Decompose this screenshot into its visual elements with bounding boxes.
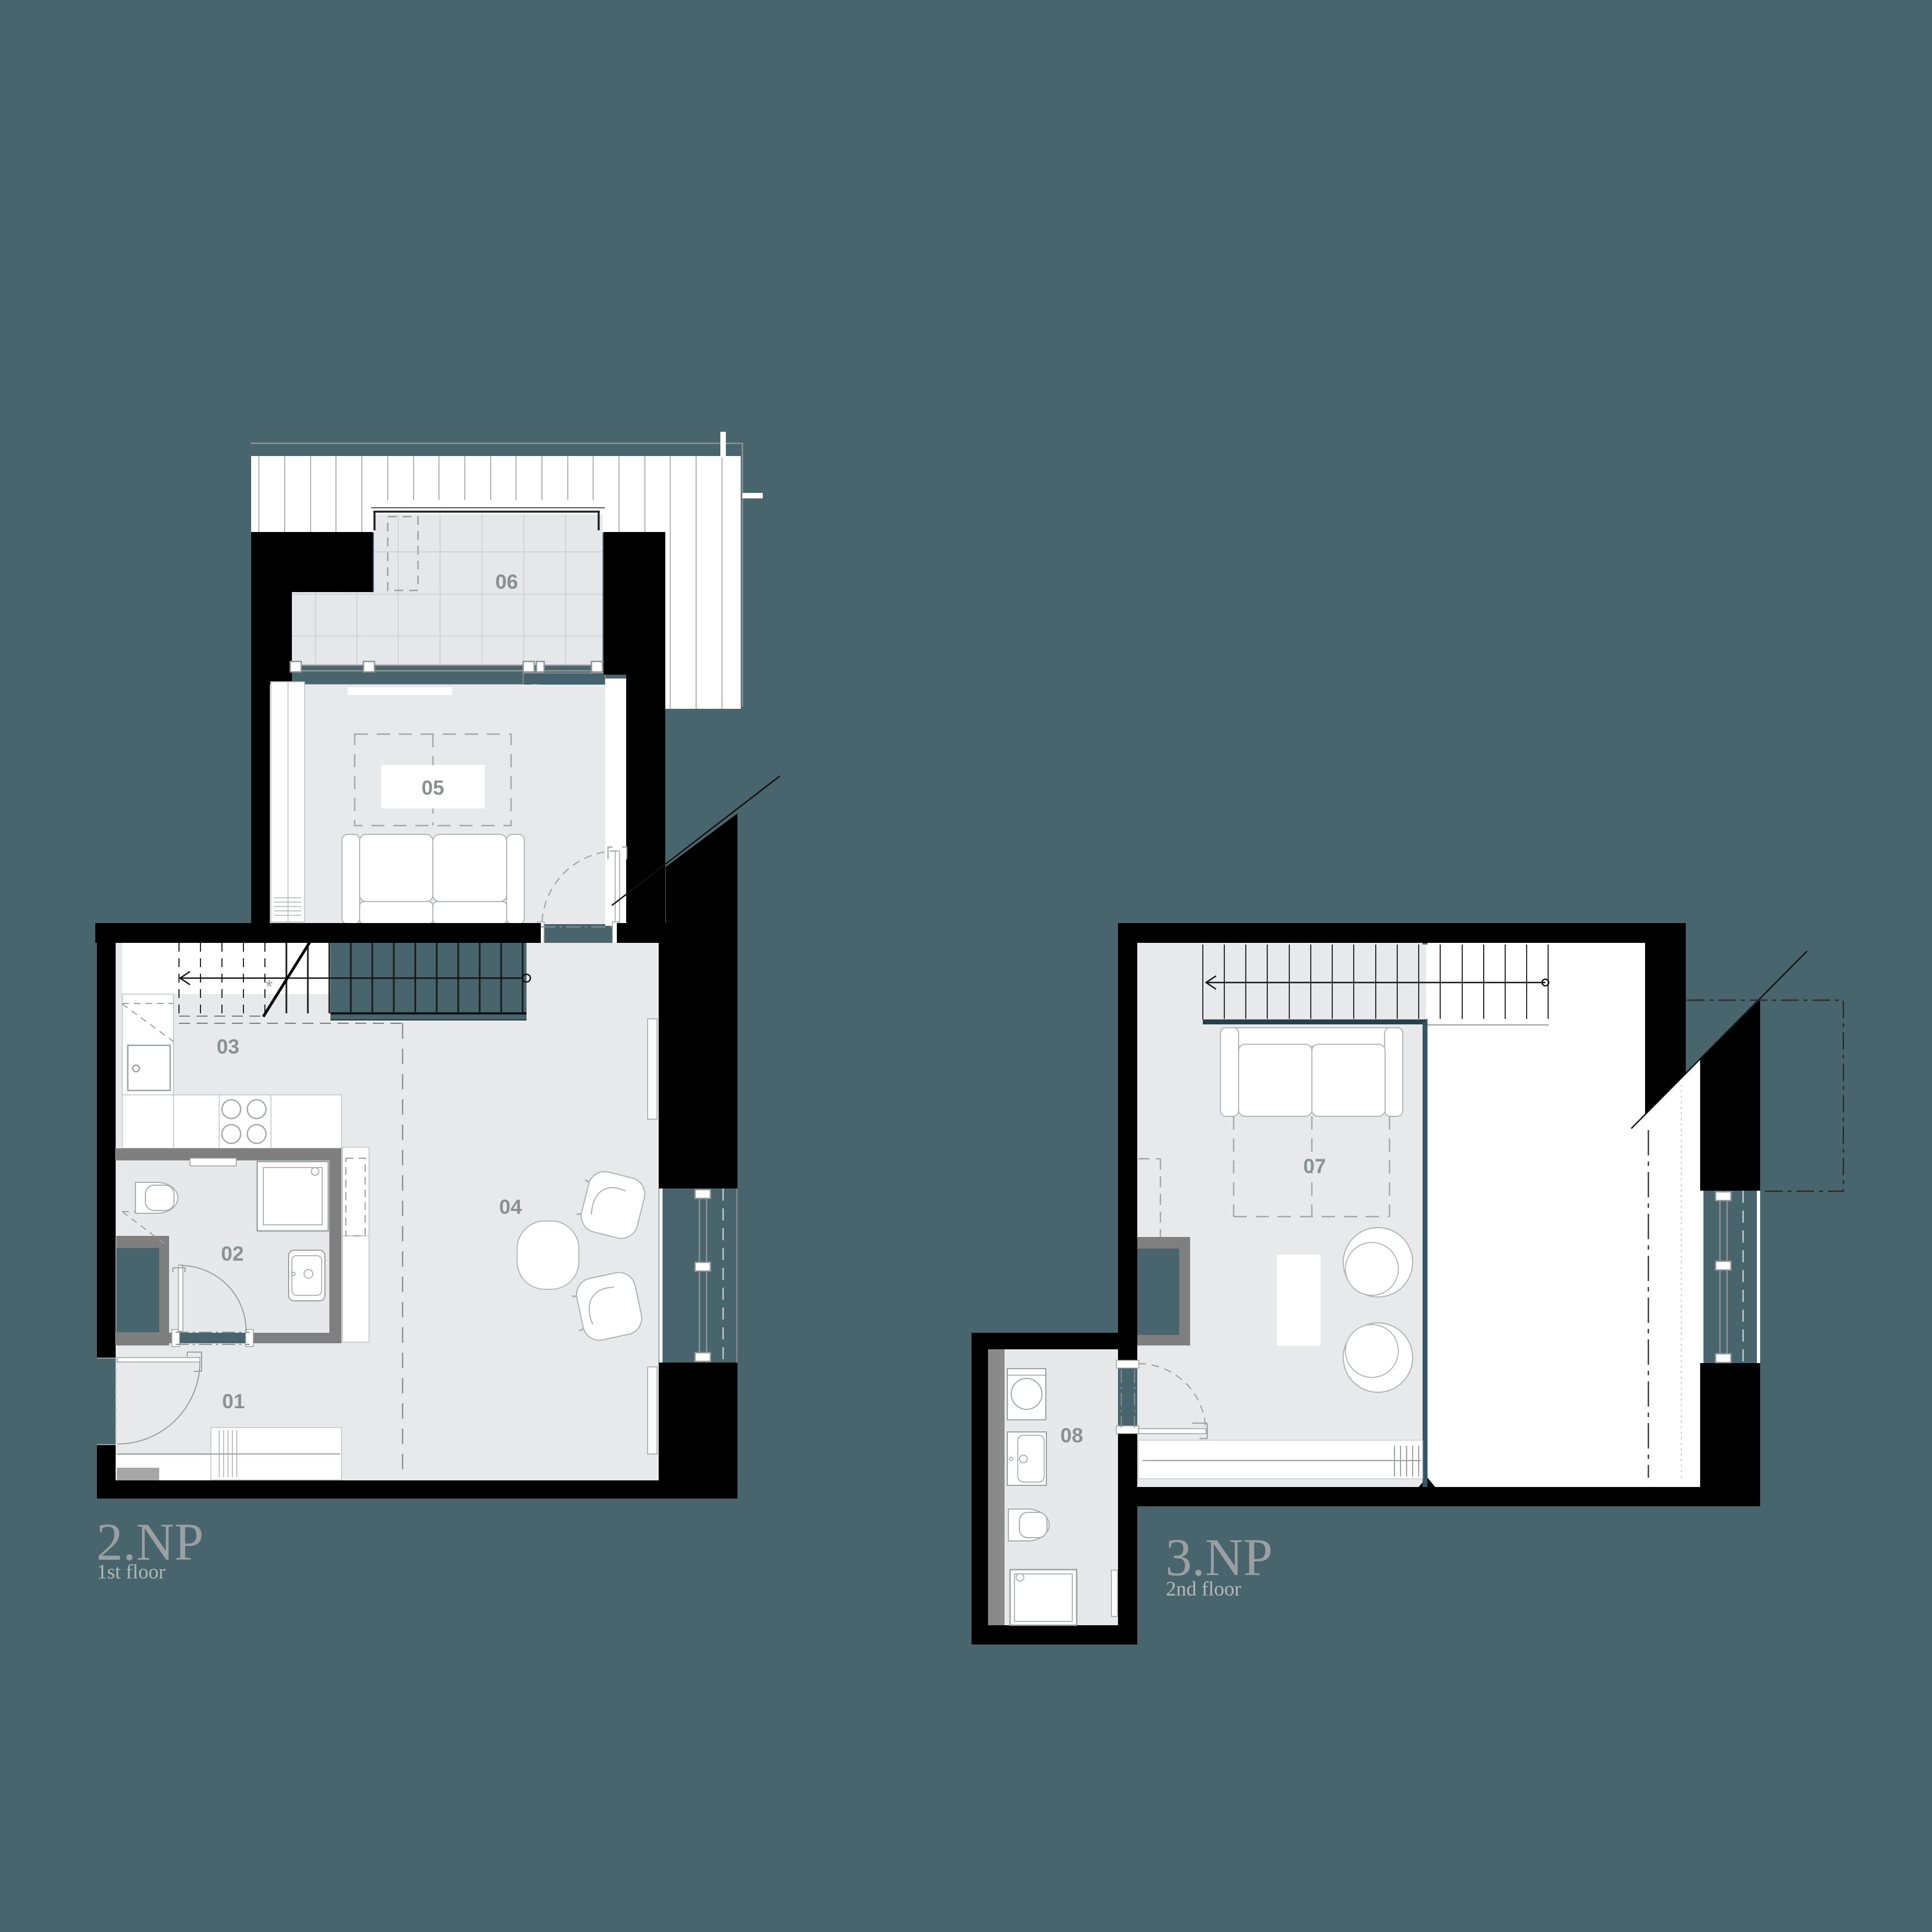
svg-text:01: 01: [222, 1390, 245, 1413]
svg-text:03: 03: [216, 1035, 239, 1058]
svg-text:1st floor: 1st floor: [97, 1561, 165, 1583]
svg-text:05: 05: [421, 777, 444, 799]
svg-text:06: 06: [495, 571, 518, 593]
svg-text:*: *: [265, 976, 273, 997]
svg-text:02: 02: [221, 1242, 243, 1265]
svg-text:2nd floor: 2nd floor: [1166, 1578, 1241, 1600]
svg-text:04: 04: [499, 1196, 522, 1218]
svg-text:08: 08: [1060, 1424, 1083, 1447]
svg-text:07: 07: [1303, 1155, 1326, 1177]
